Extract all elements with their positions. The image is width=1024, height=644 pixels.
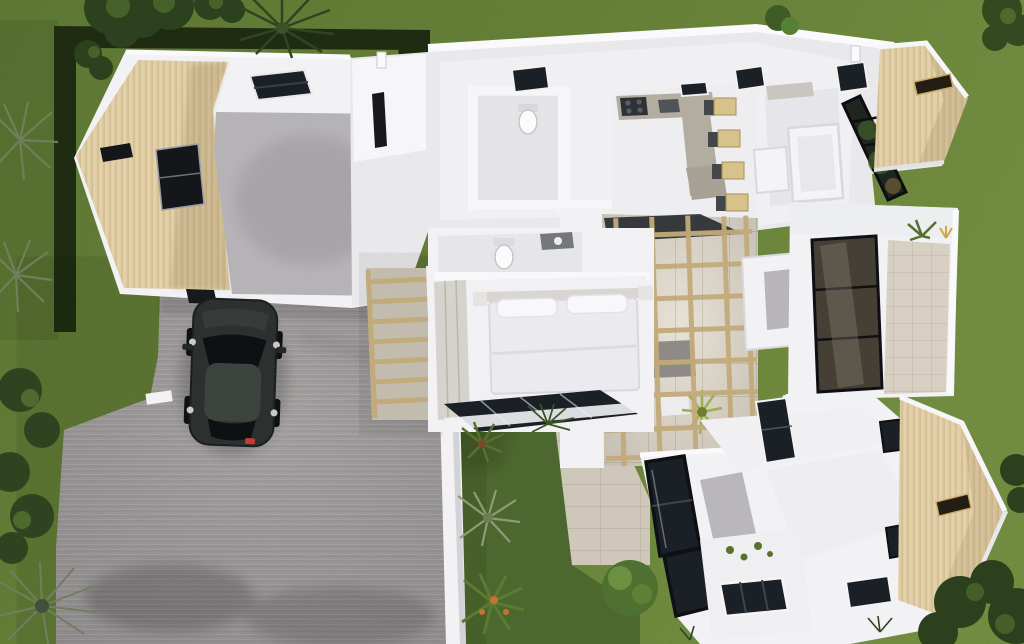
bar-stool: [712, 162, 744, 179]
connecting-wing-highlight: [352, 54, 426, 162]
orange-bloom: [490, 596, 498, 604]
skylight: [512, 66, 549, 92]
burner-2: [636, 99, 641, 104]
skylight: [836, 62, 868, 92]
bedroom-block: [428, 228, 655, 432]
tree-shadow-2: [245, 586, 435, 644]
terrace-skylight: [720, 578, 788, 616]
bath-sink: [554, 237, 562, 245]
car-windshield: [202, 333, 267, 368]
tree-shadow-1: [85, 564, 255, 632]
wardrobe: [434, 280, 470, 420]
render-viewport: [0, 0, 1024, 644]
burner-3: [626, 108, 631, 113]
bed-pillow-left: [497, 298, 557, 318]
bar-stool: [716, 194, 748, 211]
wc-wall-left: [468, 88, 478, 210]
burner-1: [625, 100, 630, 105]
double-bed: [473, 286, 656, 395]
glass-greenery-reflection: [885, 178, 901, 194]
lawn-shade-left: [0, 20, 58, 340]
nightstand-right: [639, 286, 653, 300]
living-room: [754, 58, 852, 226]
skylight: [735, 66, 765, 90]
nightstand-left: [473, 292, 487, 306]
garden-bush: [602, 560, 658, 616]
parked-car: [177, 298, 290, 458]
wc-wall-bottom: [468, 200, 618, 209]
glass-greenery-reflection: [858, 120, 878, 140]
kitchen: [612, 82, 758, 228]
bar-stool: [704, 98, 736, 115]
wing-skylight-sw: [846, 576, 892, 608]
car-roof: [204, 363, 262, 423]
car-taillight: [245, 438, 255, 444]
bed-pillow-right: [567, 294, 627, 314]
sofa-seat: [797, 134, 836, 192]
right-terrace: [788, 202, 958, 400]
ottoman: [754, 147, 789, 193]
cooktop: [620, 97, 648, 116]
wc-wall-right: [558, 86, 570, 212]
skylight: [680, 82, 708, 96]
bath-toilet: [495, 245, 513, 269]
terrace-travertine-tiles: [884, 240, 950, 394]
bar-stool: [708, 130, 740, 147]
kitchen-sink: [658, 99, 680, 113]
chimney-right: [851, 46, 860, 62]
main-house: [428, 26, 968, 232]
car-mirror-right: [276, 347, 286, 353]
wc-toilet: [519, 110, 537, 134]
orange-bloom: [503, 609, 509, 615]
burner-4: [637, 107, 642, 112]
terrace-top-ledge: [790, 202, 958, 238]
car-mirror-left: [182, 344, 192, 350]
chimney-left: [377, 52, 386, 68]
orange-bloom: [479, 609, 485, 615]
